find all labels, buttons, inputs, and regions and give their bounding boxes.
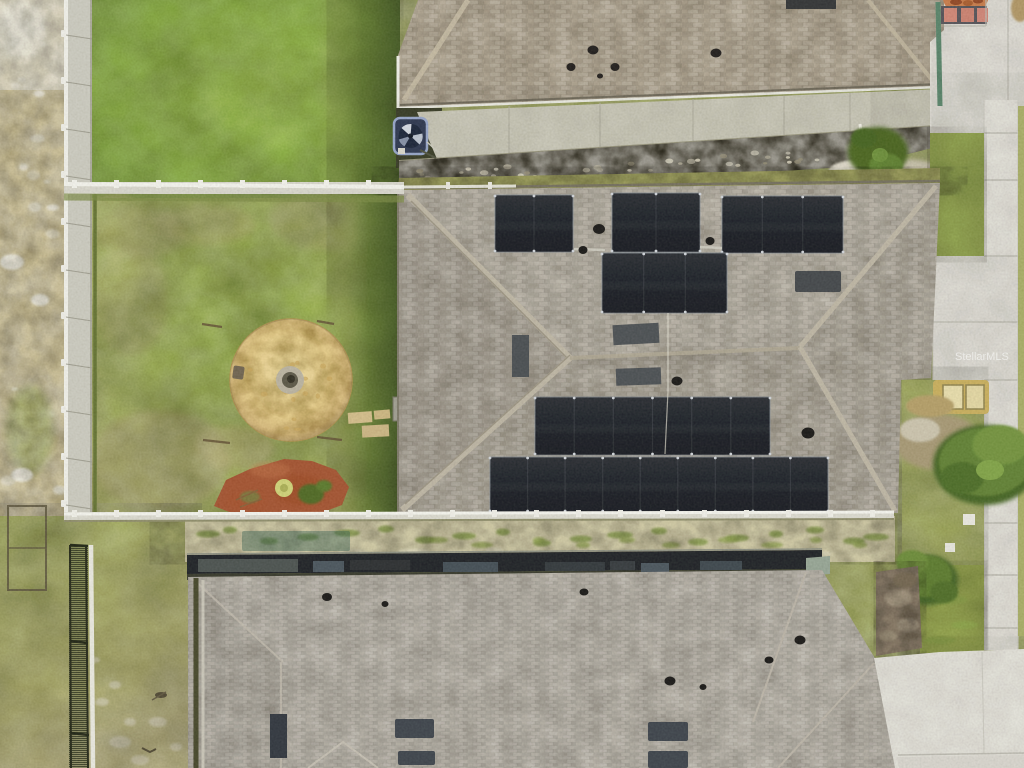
- svg-text:StellarMLS: StellarMLS: [955, 351, 1009, 363]
